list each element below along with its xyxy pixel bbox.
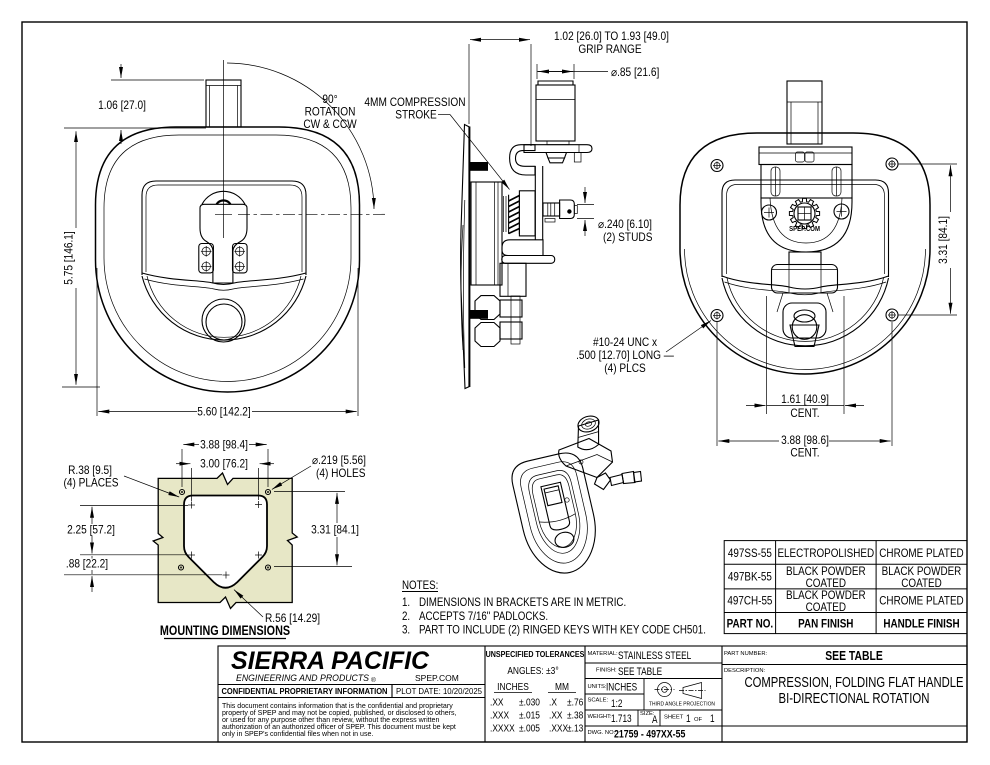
svg-text:CHROME PLATED: CHROME PLATED <box>879 595 964 608</box>
svg-text:MM: MM <box>555 681 569 693</box>
svg-text:±.76: ±.76 <box>567 697 583 709</box>
svg-text:3.31 [84.1]: 3.31 [84.1] <box>311 524 359 537</box>
svg-text:.500 [12.70] LONG —: .500 [12.70] LONG — <box>576 349 674 362</box>
svg-text:SEE TABLE: SEE TABLE <box>825 649 883 663</box>
svg-text:FINISH:: FINISH: <box>596 668 617 674</box>
svg-text:A: A <box>652 714 658 726</box>
svg-text:1.713: 1.713 <box>611 713 632 725</box>
svg-text:1: 1 <box>710 713 715 725</box>
svg-text:SPEP.COM: SPEP.COM <box>789 225 820 233</box>
svg-text:21759 - 497XX-55: 21759 - 497XX-55 <box>614 729 686 741</box>
svg-text:3.: 3. <box>402 624 410 637</box>
svg-text:UNITS:: UNITS: <box>588 684 607 690</box>
svg-text:SCALE:: SCALE: <box>588 698 609 704</box>
svg-text:UNSPECIFIED TOLERANCES: UNSPECIFIED TOLERANCES <box>486 649 585 659</box>
svg-text:SIERRA PACIFIC: SIERRA PACIFIC <box>231 647 430 675</box>
svg-text:3.88 [98.4]: 3.88 [98.4] <box>200 439 248 452</box>
svg-text:±.13: ±.13 <box>567 723 583 735</box>
svg-text:.XXXX: .XXXX <box>490 723 515 735</box>
svg-text:(4) PLACES: (4) PLACES <box>63 477 118 490</box>
svg-text:NOTES:: NOTES: <box>402 579 438 592</box>
svg-text:1:2: 1:2 <box>611 698 622 710</box>
svg-text:STROKE: STROKE <box>395 109 437 122</box>
svg-text:497SS-55: 497SS-55 <box>728 547 772 560</box>
svg-text:1.06 [27.0]: 1.06 [27.0] <box>98 99 146 112</box>
svg-text:1: 1 <box>686 713 691 725</box>
svg-text:ELECTROPOLISHED: ELECTROPOLISHED <box>777 547 874 560</box>
svg-text:4MM COMPRESSION: 4MM COMPRESSION <box>364 96 465 109</box>
svg-text:CENT.: CENT. <box>790 447 819 460</box>
svg-text:HANDLE FINISH: HANDLE FINISH <box>883 618 960 631</box>
svg-text:BLACK POWDER: BLACK POWDER <box>786 565 866 578</box>
svg-text:ACCEPTS 7/16" PADLOCKS.: ACCEPTS 7/16" PADLOCKS. <box>419 610 548 623</box>
svg-text:.XXX: .XXX <box>549 723 569 735</box>
svg-text:3.88 [98.6]: 3.88 [98.6] <box>781 434 829 447</box>
svg-text:497BK-55: 497BK-55 <box>728 571 772 584</box>
svg-text:GRIP RANGE: GRIP RANGE <box>578 43 641 56</box>
svg-text:or used for any purpose other: or used for any purpose other than revie… <box>222 717 439 724</box>
svg-text:3.00 [76.2]: 3.00 [76.2] <box>200 458 248 471</box>
svg-text:497CH-55: 497CH-55 <box>727 595 772 608</box>
svg-text:⌀.219 [5.56]: ⌀.219 [5.56] <box>312 454 366 467</box>
svg-text:.XXX: .XXX <box>490 710 510 722</box>
svg-text:3.31 [84.1]: 3.31 [84.1] <box>937 216 950 264</box>
svg-text:PLOT DATE: 10/20/2025: PLOT DATE: 10/20/2025 <box>396 687 482 696</box>
svg-text:ENGINEERING AND PRODUCTS: ENGINEERING AND PRODUCTS <box>236 673 369 683</box>
svg-text:.XX: .XX <box>490 697 504 709</box>
svg-text:BI-DIRECTIONAL ROTATION: BI-DIRECTIONAL ROTATION <box>779 691 930 707</box>
svg-text:.88 [22.2]: .88 [22.2] <box>66 558 108 571</box>
svg-text:only in SPEP's confidential fi: only in SPEP's confidential files when n… <box>222 731 373 738</box>
svg-text:BLACK POWDER: BLACK POWDER <box>786 589 866 602</box>
svg-text:COMPRESSION, FOLDING FLAT HAND: COMPRESSION, FOLDING FLAT HANDLE <box>745 675 964 691</box>
svg-text:SEE TABLE: SEE TABLE <box>618 666 663 678</box>
svg-text:1.: 1. <box>402 596 410 609</box>
svg-text:PAN FINISH: PAN FINISH <box>798 618 854 631</box>
svg-text:1.61 [40.9]: 1.61 [40.9] <box>781 393 829 406</box>
svg-text:DWG. NO.: DWG. NO. <box>588 730 616 736</box>
svg-text:±.030: ±.030 <box>519 697 540 709</box>
svg-text:#10-24 UNC x: #10-24 UNC x <box>593 336 658 349</box>
svg-text:INCHES: INCHES <box>606 681 638 693</box>
svg-text:⌀.240 [6.10]: ⌀.240 [6.10] <box>598 218 652 231</box>
svg-text:ANGLES: ±3°: ANGLES: ±3° <box>507 665 559 677</box>
svg-text:2.: 2. <box>402 610 410 623</box>
svg-text:OF: OF <box>694 717 703 723</box>
svg-text:±.38: ±.38 <box>567 710 583 722</box>
svg-text:ROTATION: ROTATION <box>305 106 356 119</box>
svg-text:DIMENSIONS IN BRACKETS ARE IN: DIMENSIONS IN BRACKETS ARE IN METRIC. <box>419 596 626 609</box>
svg-text:STAINLESS STEEL: STAINLESS STEEL <box>618 650 692 662</box>
svg-text:MOUNTING DIMENSIONS: MOUNTING DIMENSIONS <box>160 623 290 638</box>
svg-text:INCHES: INCHES <box>497 681 529 693</box>
svg-text:COATED: COATED <box>901 577 942 590</box>
svg-text:±.015: ±.015 <box>519 710 540 722</box>
svg-text:authorization of an authorized: authorization of an authorized officer o… <box>222 724 456 731</box>
svg-text:SHEET: SHEET <box>664 715 684 721</box>
svg-text:⌀.85 [21.6]: ⌀.85 [21.6] <box>611 66 659 79</box>
svg-text:(4) HOLES: (4) HOLES <box>316 467 365 480</box>
svg-text:CHROME PLATED: CHROME PLATED <box>879 547 964 560</box>
svg-text:(4) PLCS: (4) PLCS <box>604 362 646 375</box>
svg-text:.X: .X <box>549 697 558 709</box>
svg-text:5.75 [146.1]: 5.75 [146.1] <box>63 231 76 284</box>
svg-text:.XX: .XX <box>549 710 563 722</box>
svg-text:2.25 [57.2]: 2.25 [57.2] <box>67 524 115 537</box>
svg-text:PART NUMBER:: PART NUMBER: <box>724 651 768 657</box>
svg-text:This document contains informa: This document contains information that … <box>222 703 453 710</box>
svg-text:CENT.: CENT. <box>790 407 819 420</box>
svg-text:CONFIDENTIAL PROPRIETARY INFOR: CONFIDENTIAL PROPRIETARY INFORMATION <box>222 687 388 696</box>
svg-text:®: ® <box>371 676 376 684</box>
svg-text:(2) STUDS: (2) STUDS <box>603 231 652 244</box>
svg-text:BLACK POWDER: BLACK POWDER <box>882 565 962 578</box>
svg-text:90°: 90° <box>322 93 337 106</box>
svg-text:PART TO INCLUDE (2) RINGED KEY: PART TO INCLUDE (2) RINGED KEYS WITH KEY… <box>419 624 706 637</box>
svg-text:±.005: ±.005 <box>519 723 540 735</box>
svg-text:5.60 [142.2]: 5.60 [142.2] <box>197 406 250 419</box>
svg-text:property of SPEP and may not b: property of SPEP and may not be copied, … <box>222 710 457 717</box>
svg-text:WEIGHT:: WEIGHT: <box>588 714 613 720</box>
svg-text:COATED: COATED <box>806 577 847 590</box>
svg-text:THIRD ANGLE PROJECTION: THIRD ANGLE PROJECTION <box>649 701 715 707</box>
svg-text:R.38 [9.5]: R.38 [9.5] <box>68 464 112 477</box>
svg-text:MATERIAL:: MATERIAL: <box>588 651 619 657</box>
svg-text:COATED: COATED <box>806 601 847 614</box>
svg-text:DESCRIPTION:: DESCRIPTION: <box>724 668 766 674</box>
svg-text:SPEP.COM: SPEP.COM <box>415 673 459 683</box>
svg-text:PART NO.: PART NO. <box>727 618 774 631</box>
svg-text:1.02 [26.0] TO 1.93 [49.0]: 1.02 [26.0] TO 1.93 [49.0] <box>554 30 669 43</box>
